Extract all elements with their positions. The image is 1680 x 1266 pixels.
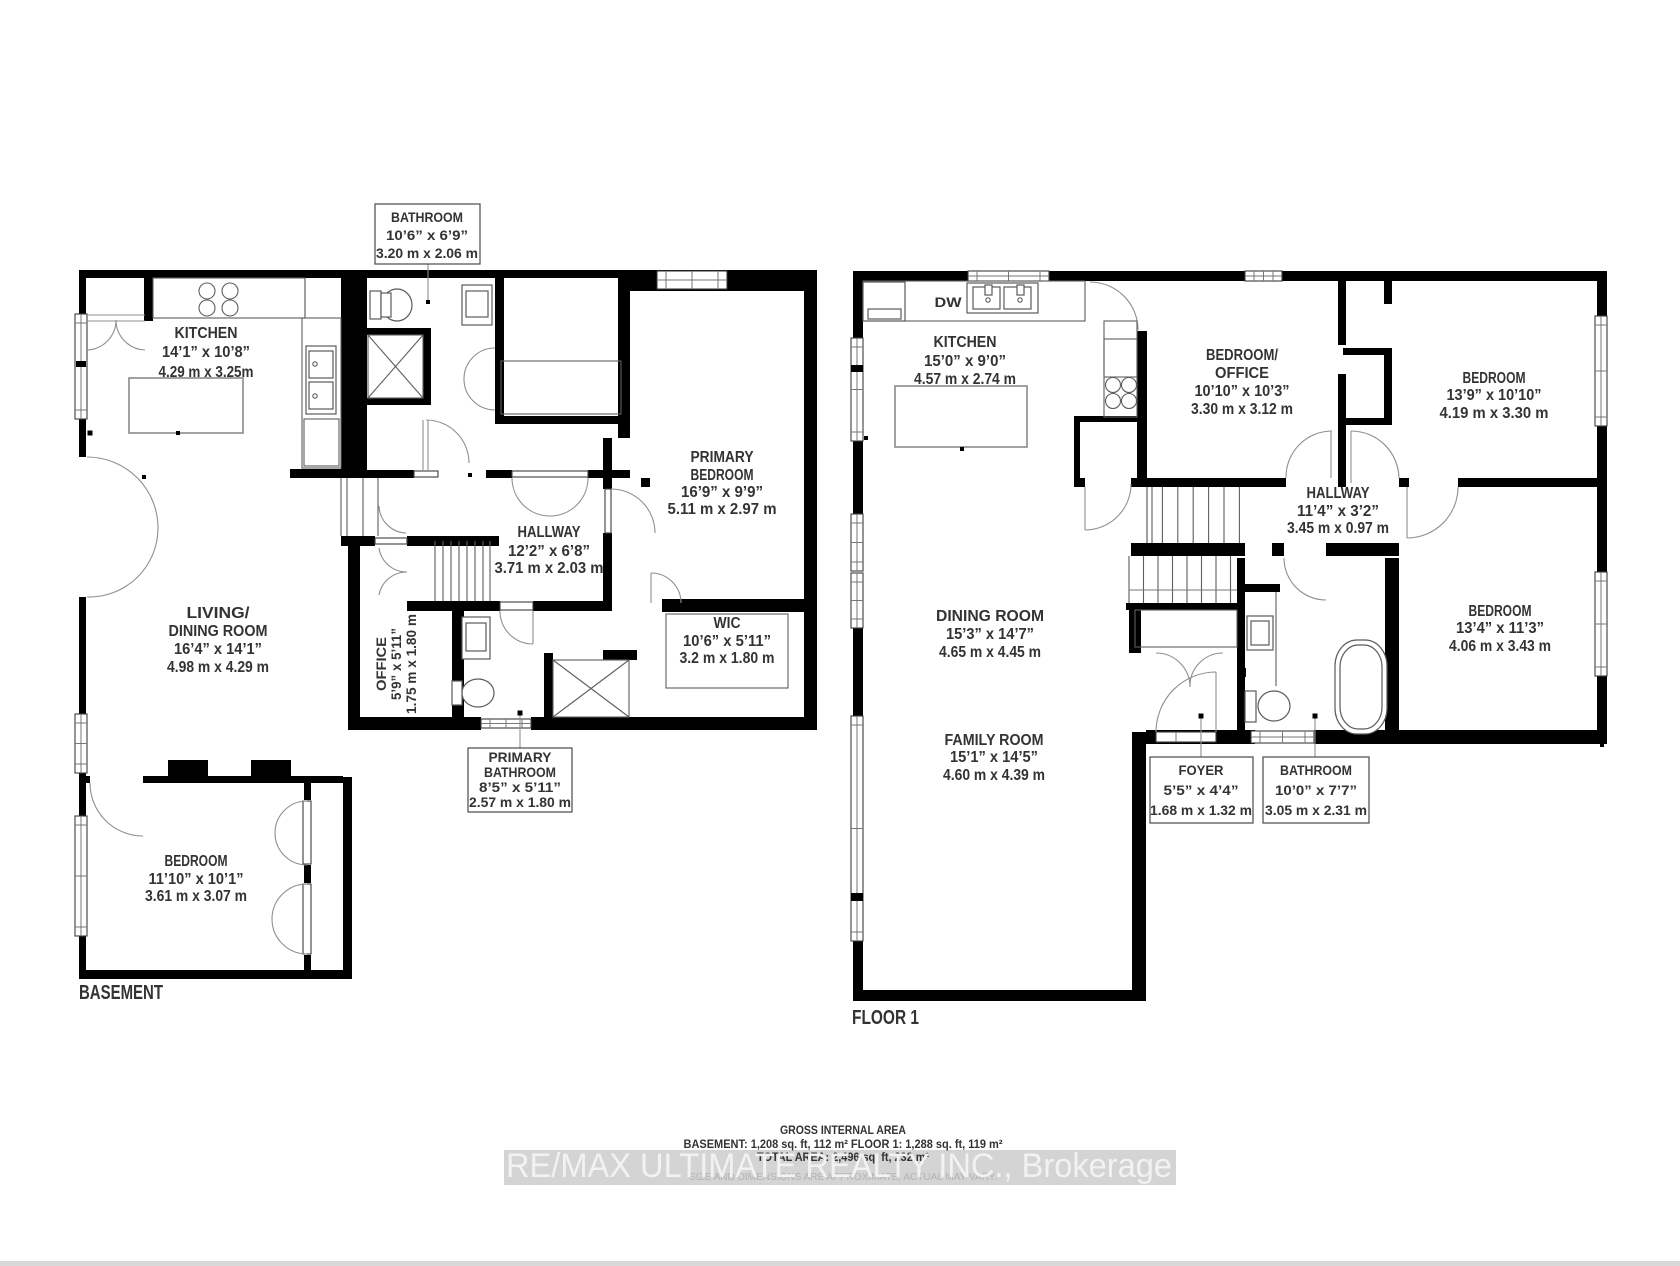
svg-text:16’4” x 14’1”: 16’4” x 14’1” <box>174 641 262 658</box>
svg-text:LIVING/: LIVING/ <box>187 605 251 622</box>
svg-text:PRIMARY: PRIMARY <box>489 749 553 765</box>
svg-text:3.61 m x 3.07 m: 3.61 m x 3.07 m <box>145 888 247 905</box>
svg-text:5’5” x 4’4”: 5’5” x 4’4” <box>1164 782 1239 798</box>
svg-text:13’9” x 10’10”: 13’9” x 10’10” <box>1447 387 1542 404</box>
svg-text:5.11 m x 2.97 m: 5.11 m x 2.97 m <box>668 501 777 518</box>
svg-text:11’10” x 10’1”: 11’10” x 10’1” <box>149 871 244 888</box>
svg-text:15’0” x 9’0”: 15’0” x 9’0” <box>924 353 1006 370</box>
svg-text:FLOOR 1: FLOOR 1 <box>852 1007 919 1029</box>
svg-text:FAMILY ROOM: FAMILY ROOM <box>945 732 1044 749</box>
svg-text:1.75 m x 1.80 m: 1.75 m x 1.80 m <box>403 614 419 714</box>
svg-text:KITCHEN: KITCHEN <box>934 334 997 351</box>
svg-text:BEDROOM/: BEDROOM/ <box>1206 347 1278 364</box>
svg-text:10’10” x 10’3”: 10’10” x 10’3” <box>1195 383 1290 400</box>
svg-text:BATHROOM: BATHROOM <box>484 764 556 780</box>
svg-text:4.98 m x 4.29 m: 4.98 m x 4.29 m <box>167 659 269 676</box>
svg-text:4.60 m x 4.39 m: 4.60 m x 4.39 m <box>943 767 1045 784</box>
svg-text:BATHROOM: BATHROOM <box>391 209 463 225</box>
svg-text:3.05 m x 2.31 m: 3.05 m x 2.31 m <box>1265 802 1367 818</box>
svg-text:10’6” x 5’11”: 10’6” x 5’11” <box>683 633 771 650</box>
svg-text:3.30 m x 3.12 m: 3.30 m x 3.12 m <box>1191 401 1293 418</box>
svg-text:4.65 m x 4.45 m: 4.65 m x 4.45 m <box>939 644 1041 661</box>
svg-text:OFFICE: OFFICE <box>1215 365 1269 382</box>
svg-text:13’4” x 11’3”: 13’4” x 11’3” <box>1456 620 1544 637</box>
svg-text:12’2” x 6’8”: 12’2” x 6’8” <box>508 543 590 560</box>
svg-text:4.19 m x 3.30 m: 4.19 m x 3.30 m <box>1440 405 1549 422</box>
svg-text:14’1” x 10’8”: 14’1” x 10’8” <box>162 344 250 361</box>
svg-text:3.20 m x 2.06 m: 3.20 m x 2.06 m <box>376 245 478 261</box>
svg-text:16’9” x 9’9”: 16’9” x 9’9” <box>681 484 763 501</box>
svg-text:4.06 m x 3.43 m: 4.06 m x 3.43 m <box>1449 638 1551 655</box>
svg-text:10’0” x 7’7”: 10’0” x 7’7” <box>1275 782 1357 798</box>
svg-text:FOYER: FOYER <box>1179 762 1224 778</box>
svg-text:BEDROOM: BEDROOM <box>1463 370 1526 387</box>
svg-text:OFFICE: OFFICE <box>373 637 389 691</box>
svg-text:8’5” x 5’11”: 8’5” x 5’11” <box>479 779 561 795</box>
svg-text:BASEMENT: BASEMENT <box>79 982 163 1004</box>
svg-text:GROSS INTERNAL AREA: GROSS INTERNAL AREA <box>780 1123 906 1137</box>
svg-text:4.57 m x 2.74 m: 4.57 m x 2.74 m <box>914 371 1016 388</box>
svg-text:15’3” x 14’7”: 15’3” x 14’7” <box>946 626 1034 643</box>
svg-text:5’9” x 5’11”: 5’9” x 5’11” <box>388 628 404 700</box>
svg-text:BEDROOM: BEDROOM <box>691 467 754 484</box>
svg-text:11’4” x 3’2”: 11’4” x 3’2” <box>1297 503 1379 520</box>
svg-text:KITCHEN: KITCHEN <box>175 325 238 342</box>
svg-text:WIC: WIC <box>714 615 741 632</box>
svg-text:PRIMARY: PRIMARY <box>691 449 754 466</box>
svg-text:DW: DW <box>935 294 963 310</box>
svg-text:3.45 m x 0.97 m: 3.45 m x 0.97 m <box>1287 520 1389 537</box>
svg-text:DINING ROOM: DINING ROOM <box>169 623 268 640</box>
svg-text:10’6” x 6’9”: 10’6” x 6’9” <box>386 227 468 243</box>
svg-text:DINING ROOM: DINING ROOM <box>936 608 1044 625</box>
svg-text:BATHROOM: BATHROOM <box>1280 762 1352 778</box>
svg-text:RE/MAX ULTIMATE REALTY INC., B: RE/MAX ULTIMATE REALTY INC., Brokerage <box>506 1147 1172 1185</box>
svg-text:4.29 m x 3.25m: 4.29 m x 3.25m <box>159 364 254 381</box>
svg-text:3.2 m x 1.80 m: 3.2 m x 1.80 m <box>680 650 775 667</box>
svg-text:BEDROOM: BEDROOM <box>165 853 228 870</box>
svg-text:BEDROOM: BEDROOM <box>1469 603 1532 620</box>
svg-text:15’1” x 14’5”: 15’1” x 14’5” <box>950 749 1038 766</box>
svg-text:1.68 m x 1.32 m: 1.68 m x 1.32 m <box>1150 802 1252 818</box>
svg-text:HALLWAY: HALLWAY <box>518 524 581 541</box>
svg-text:2.57 m x 1.80 m: 2.57 m x 1.80 m <box>469 794 571 810</box>
svg-text:3.71 m x 2.03 m: 3.71 m x 2.03 m <box>495 560 604 577</box>
svg-text:HALLWAY: HALLWAY <box>1307 485 1370 502</box>
